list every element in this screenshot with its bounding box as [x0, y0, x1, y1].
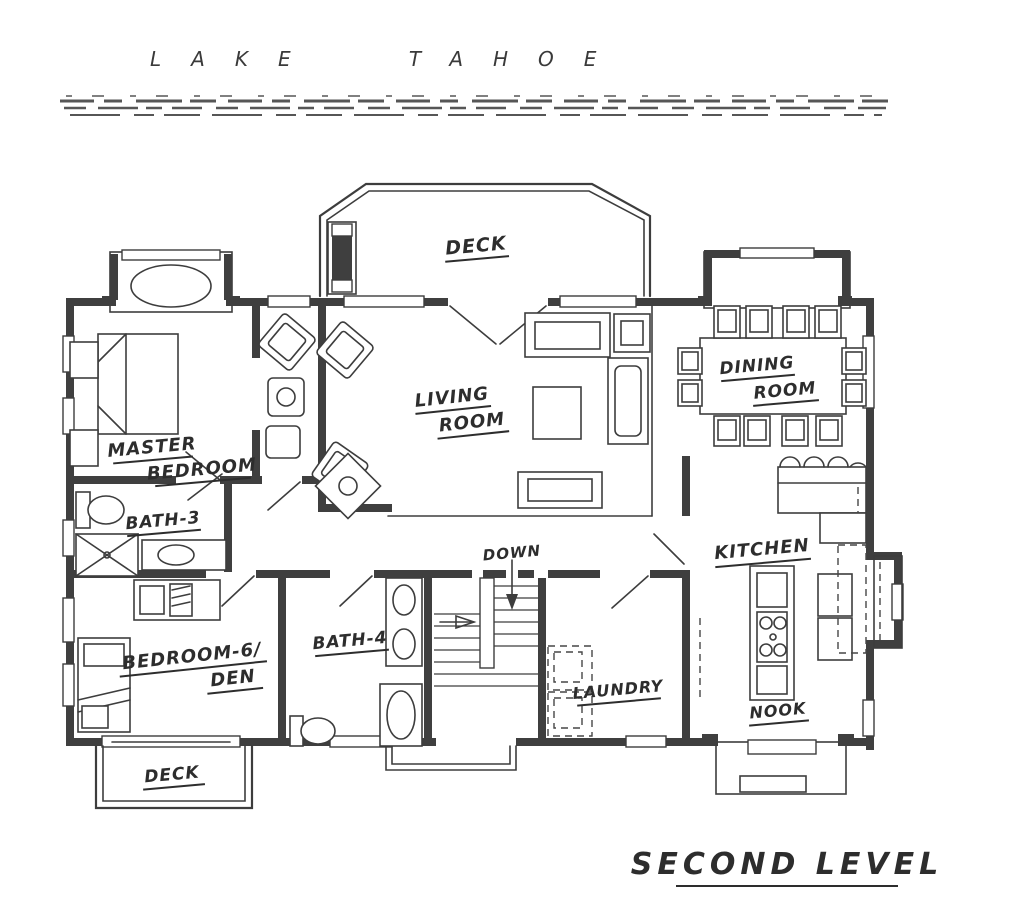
- desk-shelves: [134, 580, 220, 620]
- shoreline-hatching: [60, 96, 890, 115]
- svg-text:DEN: DEN: [209, 666, 256, 692]
- lower-landing-edge: [386, 746, 516, 770]
- dining-chairs-top: [714, 306, 841, 338]
- nightstand: [70, 430, 98, 466]
- bath3-label: BATH-3: [125, 508, 202, 536]
- window-seat-oval: [131, 265, 211, 307]
- bath4-fixtures: [290, 578, 422, 746]
- shower: [76, 534, 138, 576]
- coffee-table: [533, 387, 581, 439]
- master-bay-window: [102, 250, 240, 312]
- bar-stool: [804, 457, 824, 467]
- svg-text:DOWN: DOWN: [482, 541, 542, 564]
- master-bedroom-label: MASTER: [107, 433, 198, 464]
- svg-text:NOOK: NOOK: [749, 699, 808, 723]
- double-vanity: [386, 578, 422, 666]
- dining-chairs-left: [678, 348, 702, 406]
- refrigerator: [818, 574, 852, 660]
- bath4-door: [340, 576, 372, 606]
- scanned-floor-plan-page: LAKE TAHOE: [0, 0, 1024, 910]
- svg-text:DECK: DECK: [144, 763, 202, 788]
- nightstand: [70, 342, 98, 378]
- bedroom6-label-2: DEN: [205, 665, 263, 694]
- toilet-bowl: [88, 496, 124, 524]
- kitchen-entry-door: [654, 534, 684, 564]
- vanity-sink: [142, 540, 226, 570]
- sheet-title: SECOND LEVEL: [631, 847, 944, 886]
- stair-rail: [480, 578, 494, 668]
- living-room-label: LIVING: [413, 383, 491, 414]
- living-room-label-2: ROOM: [435, 408, 509, 438]
- bar-stool: [828, 457, 848, 467]
- bath4-label: BATH-4: [312, 628, 389, 657]
- armchair: [257, 312, 316, 371]
- toilet: [290, 716, 335, 746]
- lake-name-label: LAKE TAHOE: [150, 47, 626, 71]
- bedroom6-door: [222, 576, 254, 606]
- staircase: [434, 560, 538, 686]
- hall-door: [268, 482, 300, 510]
- french-door-left: [450, 306, 496, 344]
- deck-top-label: DECK: [443, 232, 509, 261]
- floor-plan-drawing: LAKE TAHOE: [0, 0, 1024, 910]
- dining-chairs-bottom: [714, 416, 842, 446]
- bathtub: [380, 684, 422, 746]
- kitchen-island: [750, 566, 794, 700]
- laundry-door: [612, 576, 648, 608]
- nightstand: [82, 706, 108, 728]
- dining-bay-window: [698, 248, 852, 308]
- bed: [78, 638, 130, 732]
- down-label: DOWN: [482, 541, 542, 564]
- deck-bottom-label: DECK: [141, 762, 205, 789]
- breakfast-bar: [778, 457, 866, 543]
- sitting-alcove-furniture: [257, 312, 316, 458]
- side-table: [266, 426, 300, 458]
- kitchen-label: KITCHEN: [713, 535, 811, 567]
- lamp-table: [268, 378, 304, 416]
- nook-label: NOOK: [747, 698, 809, 725]
- nook-bay-window: [702, 734, 854, 794]
- laundry-label: LAUNDRY: [572, 676, 665, 706]
- bar-stool: [780, 457, 800, 467]
- page-title: SECOND LEVEL: [631, 847, 944, 882]
- svg-text:DECK: DECK: [444, 232, 507, 259]
